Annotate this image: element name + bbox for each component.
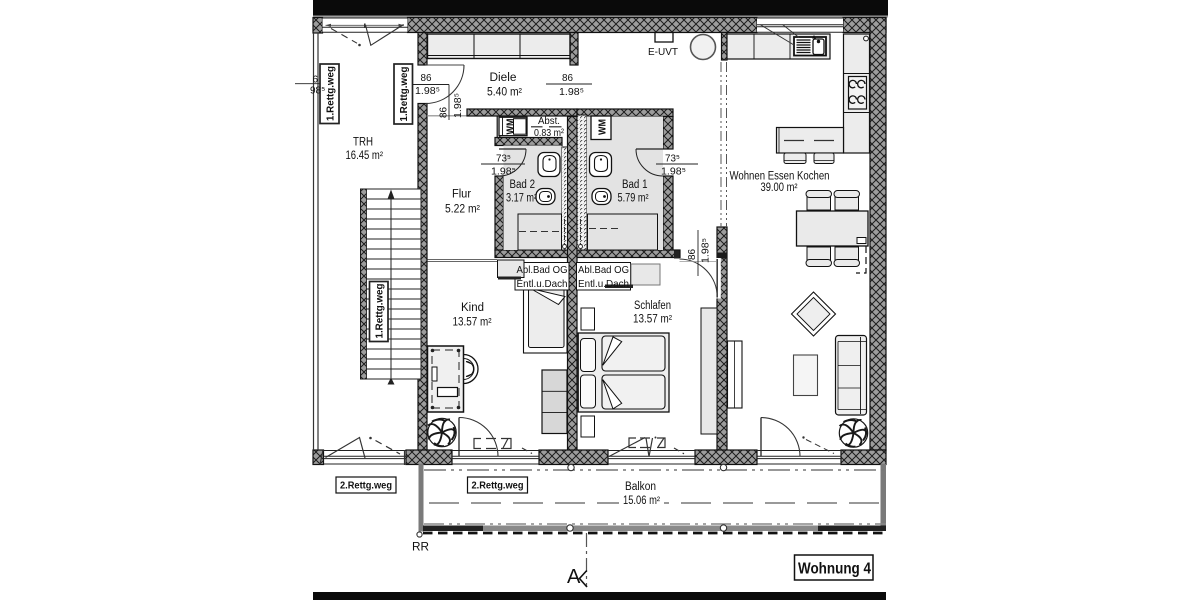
- svg-text:39.00 m²: 39.00 m²: [761, 182, 798, 194]
- svg-text:1.98⁵: 1.98⁵: [701, 238, 712, 263]
- svg-text:Entl.u.Dach: Entl.u.Dach: [578, 278, 629, 290]
- svg-text:E-UVT: E-UVT: [648, 47, 678, 58]
- svg-text:73⁵: 73⁵: [665, 154, 680, 165]
- svg-text:86: 86: [562, 73, 573, 84]
- svg-text:A: A: [567, 566, 581, 588]
- svg-text:13.57 m²: 13.57 m²: [633, 314, 672, 326]
- svg-text:1.98⁵: 1.98⁵: [453, 93, 464, 118]
- svg-text:1.98⁵: 1.98⁵: [415, 86, 440, 97]
- svg-text:1.Rettg.weg: 1.Rettg.weg: [398, 67, 410, 122]
- svg-text:Wohnung 4: Wohnung 4: [798, 561, 871, 578]
- svg-text:Abl.Bad OG: Abl.Bad OG: [578, 264, 629, 276]
- svg-text:RR: RR: [412, 542, 429, 554]
- svg-text:Wohnen Essen Kochen: Wohnen Essen Kochen: [730, 171, 830, 183]
- svg-text:Diele: Diele: [490, 72, 517, 84]
- svg-text:73⁵: 73⁵: [496, 154, 511, 165]
- svg-text:Kind: Kind: [461, 302, 484, 314]
- svg-text:Entl.u.Dach: Entl.u.Dach: [517, 278, 568, 290]
- svg-text:5.40 m²: 5.40 m²: [487, 87, 522, 99]
- svg-text:1.Rettg.weg: 1.Rettg.weg: [325, 66, 337, 121]
- svg-text:Bad 2: Bad 2: [510, 179, 536, 191]
- svg-text:86: 86: [439, 107, 450, 118]
- svg-text:5.22 m²: 5.22 m²: [445, 204, 480, 216]
- svg-text:3.17 m²: 3.17 m²: [506, 193, 537, 205]
- svg-text:WM: WM: [506, 119, 517, 135]
- svg-text:15.06 m²: 15.06 m²: [623, 495, 660, 507]
- svg-text:86: 86: [687, 249, 698, 260]
- svg-text:Flur: Flur: [452, 189, 471, 201]
- svg-text:98⁵: 98⁵: [310, 86, 325, 97]
- svg-text:WM: WM: [598, 119, 609, 135]
- svg-text:2.Rettg.weg: 2.Rettg.weg: [472, 480, 524, 492]
- svg-text:1.Rettg.weg: 1.Rettg.weg: [374, 284, 386, 339]
- svg-text:Abl.Bad OG: Abl.Bad OG: [517, 264, 568, 276]
- svg-text:Bad 1: Bad 1: [622, 179, 648, 191]
- svg-text:0.83 m²: 0.83 m²: [534, 128, 565, 139]
- svg-text:TRH: TRH: [353, 137, 373, 149]
- svg-text:5.79 m²: 5.79 m²: [618, 193, 649, 205]
- svg-text:1.98⁵: 1.98⁵: [559, 87, 584, 98]
- svg-text:2.Rettg.weg: 2.Rettg.weg: [340, 480, 392, 492]
- svg-text:Abst.: Abst.: [538, 116, 560, 127]
- svg-text:1.98⁵: 1.98⁵: [661, 167, 686, 178]
- svg-text:13.57 m²: 13.57 m²: [453, 317, 492, 329]
- svg-text:16.45 m²: 16.45 m²: [346, 150, 384, 162]
- svg-text:Balkon: Balkon: [625, 481, 656, 493]
- svg-text:1.98⁵: 1.98⁵: [491, 167, 516, 178]
- svg-text:86: 86: [421, 73, 432, 84]
- svg-text:Schlafen: Schlafen: [634, 300, 671, 312]
